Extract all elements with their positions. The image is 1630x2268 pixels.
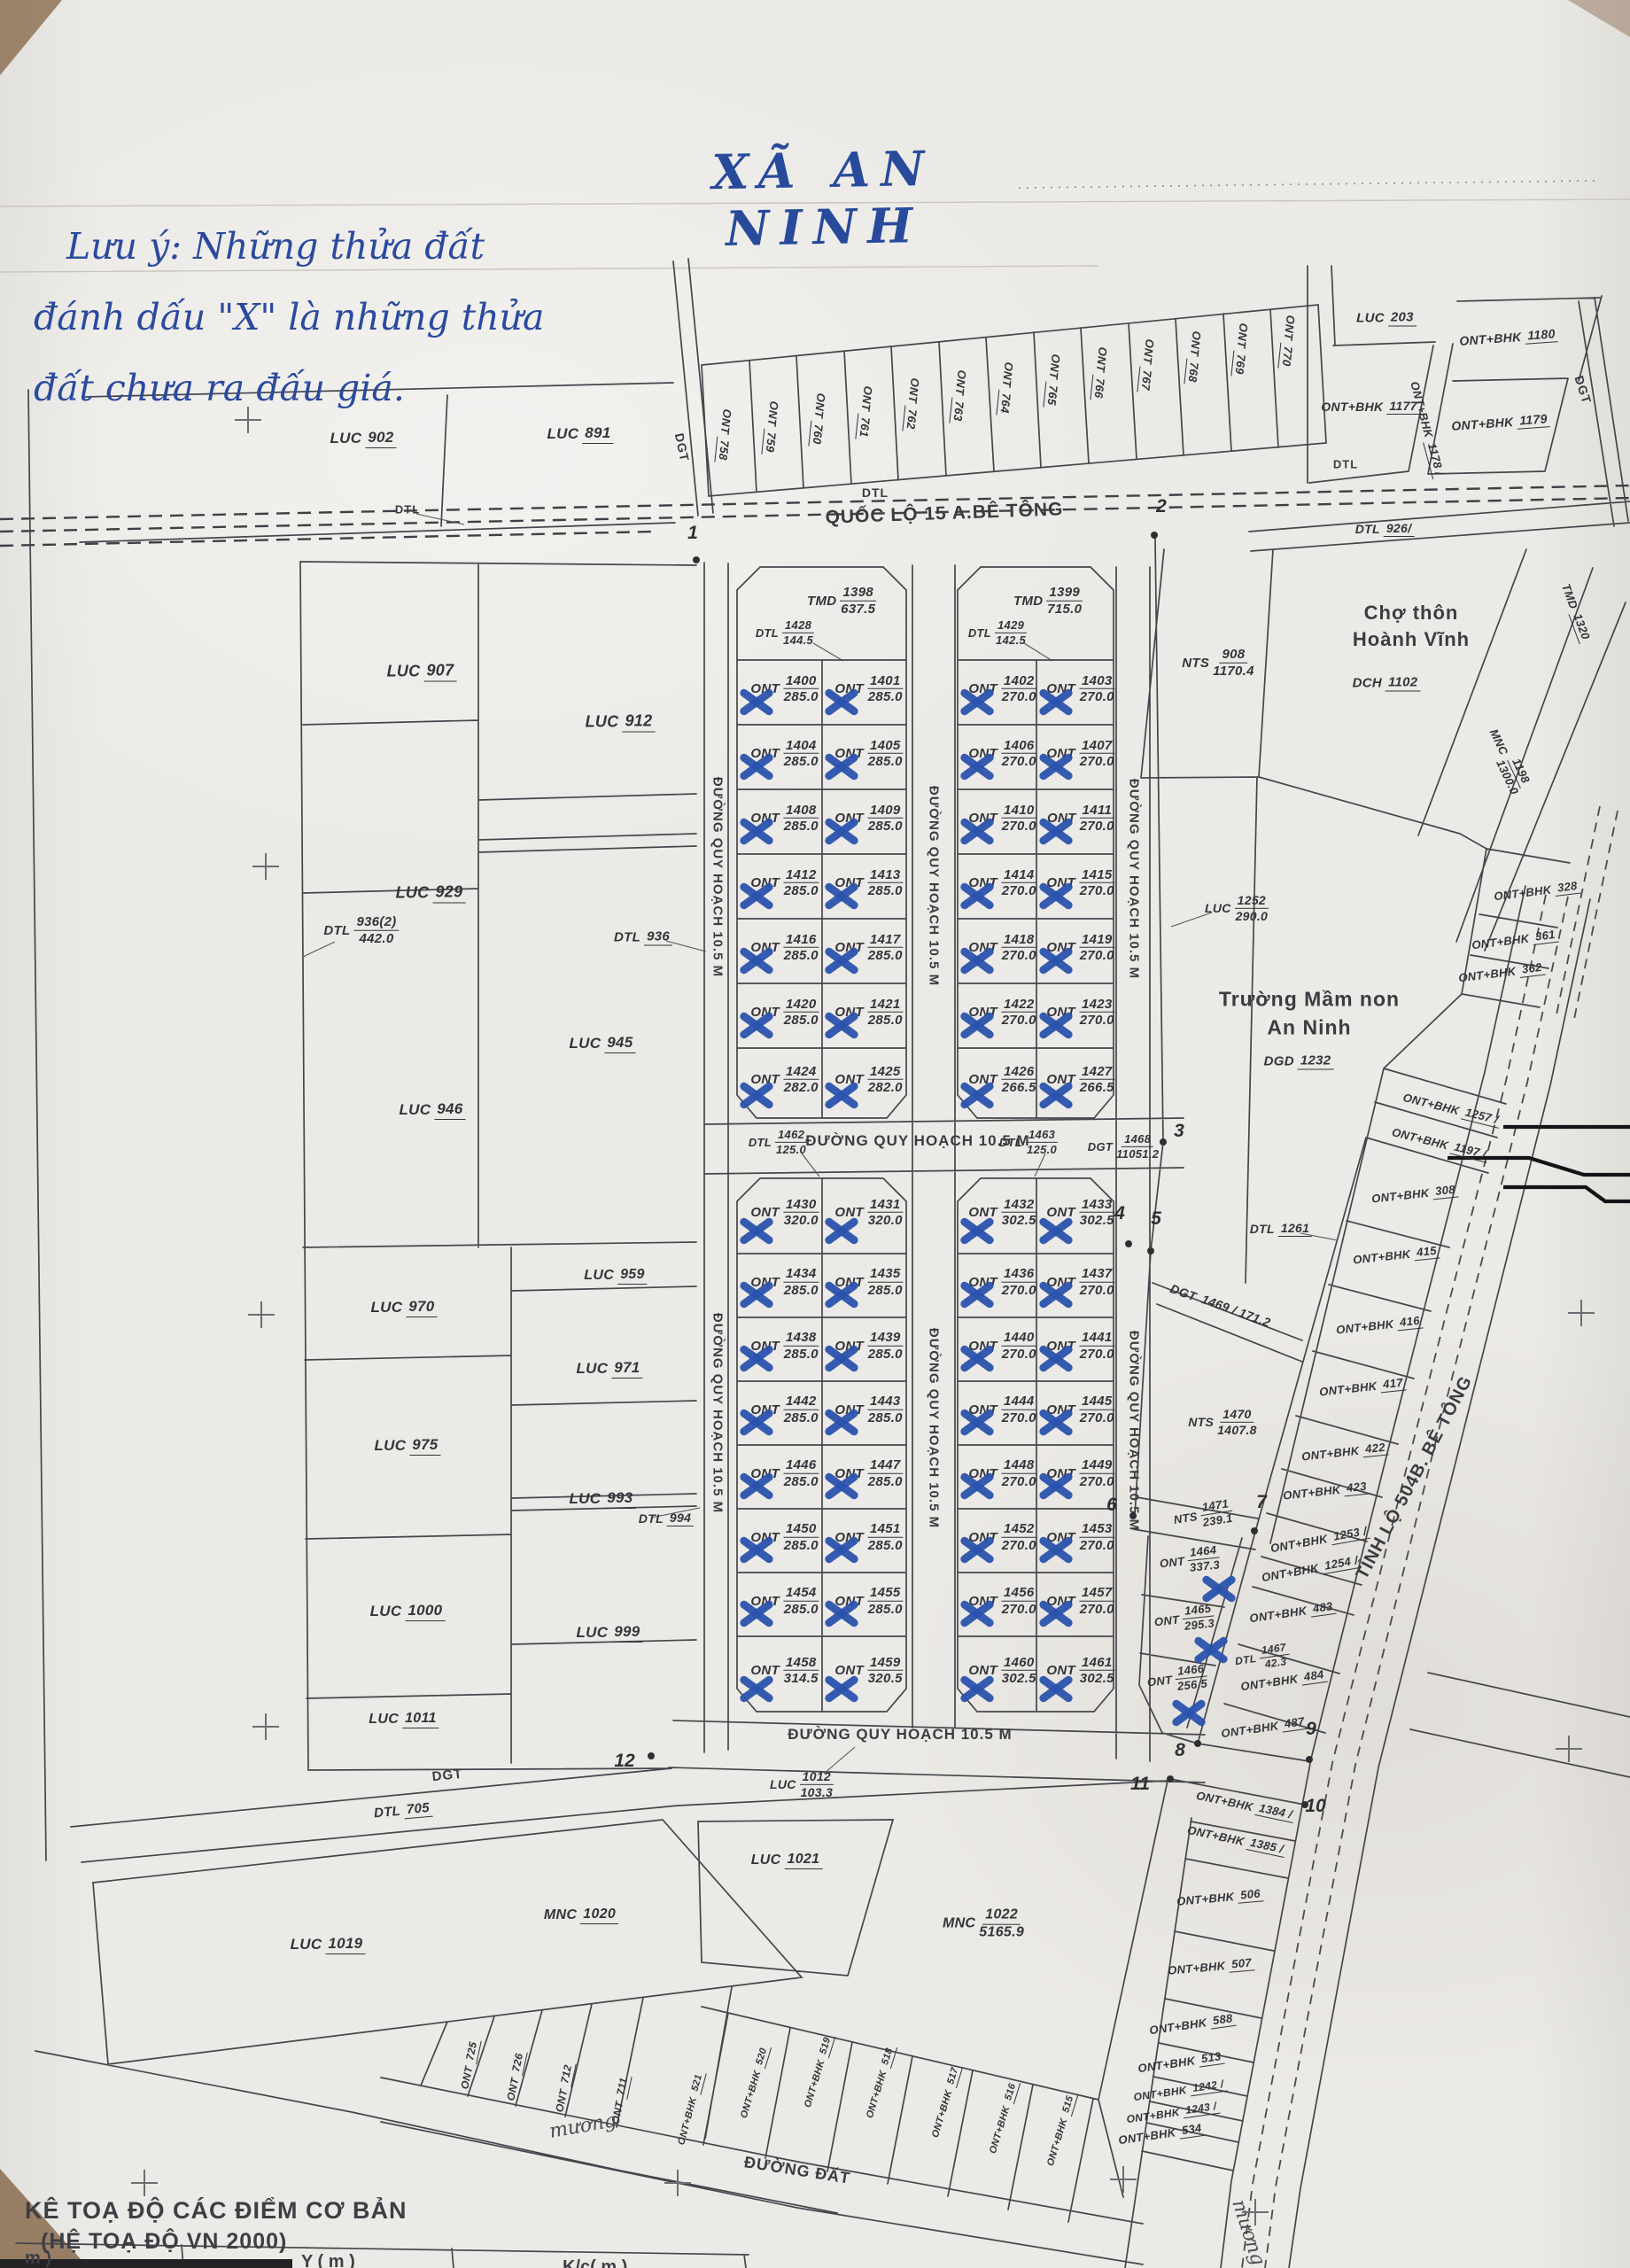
road-label: ĐƯỜNG QUY HOẠCH 10.5 M <box>1127 779 1142 979</box>
land-use-code: DTL <box>1234 1652 1257 1667</box>
parcel-number: 1429 <box>995 619 1027 633</box>
parcel-fraction: 1012103.3 <box>800 1770 834 1798</box>
survey-point-number: 3 <box>1174 1121 1184 1142</box>
parcel-number: 1407 <box>1079 738 1115 754</box>
parcel-number: 1431 <box>867 1197 904 1213</box>
parcel-number: 1102 <box>1385 675 1420 692</box>
parcel-number: 1411 <box>1080 803 1114 819</box>
parcel-fraction: 1412285.0 <box>783 867 819 898</box>
parcel-fraction: 1447285.0 <box>867 1458 904 1489</box>
parcel-fraction: 1415270.0 <box>1079 867 1115 898</box>
parcel-number: 758 <box>714 437 732 463</box>
parcel-fraction: 1438285.0 <box>783 1331 819 1362</box>
land-use-code: ONT+BHK <box>1321 400 1383 414</box>
parcel-fraction: 1464337.3 <box>1187 1543 1222 1573</box>
parcel-number: 203 <box>1388 310 1417 327</box>
land-use-code: ONT <box>1235 322 1251 349</box>
land-use-code: LUC <box>751 1852 781 1868</box>
parcel-fraction: 1453270.0 <box>1079 1522 1115 1553</box>
land-use-code: NTS <box>1182 656 1209 671</box>
parcel-area: 285.0 <box>784 1347 819 1362</box>
parcel-fraction: 1427266.5 <box>1079 1064 1115 1095</box>
parcel-number: 308 <box>1432 1182 1458 1200</box>
auction-x-mark <box>957 1213 997 1248</box>
parcel-area: 270.0 <box>1080 1283 1114 1298</box>
parcel-fraction: 1424282.0 <box>783 1064 819 1095</box>
parcel-number: 1457 <box>1079 1586 1115 1602</box>
parcel-number: 1412 <box>783 867 819 883</box>
parcel-number: 1019 <box>325 1935 365 1954</box>
parcel-label: LUC203 <box>1356 310 1417 327</box>
parcel-label: DTL1429142.5 <box>968 619 1027 646</box>
parcel-fraction: 1434285.0 <box>783 1267 819 1298</box>
parcel-area: 125.0 <box>1027 1143 1057 1156</box>
parcel-number: 1425 <box>867 1064 904 1080</box>
parcel-number: 770 <box>1277 343 1295 369</box>
auction-x-mark <box>1036 1007 1076 1043</box>
land-use-code: DTL <box>749 1136 772 1149</box>
parcel-number: 1422 <box>1001 997 1037 1013</box>
auction-x-mark <box>821 684 862 719</box>
parcel-fraction: 1426266.5 <box>1001 1064 1037 1095</box>
land-use-code: LUC <box>547 425 578 443</box>
parcel-area: 270.0 <box>1002 754 1036 769</box>
auction-x-mark <box>821 1404 862 1440</box>
parcel-number: 769 <box>1230 351 1248 377</box>
land-use-code: LUC <box>1205 901 1231 915</box>
auction-x-mark <box>736 1277 777 1312</box>
parcel-area: 270.0 <box>1080 1410 1114 1425</box>
parcel-area: 320.0 <box>784 1213 819 1228</box>
road-label: DTL <box>862 485 889 500</box>
parcel-fraction: 1421285.0 <box>867 997 904 1028</box>
parcel-fraction: 1420285.0 <box>783 997 819 1028</box>
parcel-number: 506 <box>1238 1886 1264 1903</box>
auction-x-mark <box>1036 943 1076 978</box>
parcel-number: 761 <box>855 414 873 440</box>
parcel-fraction: 1454285.0 <box>783 1586 819 1617</box>
parcel-number: 1468 <box>1122 1133 1153 1147</box>
auction-x-mark <box>1036 749 1076 784</box>
parcel-fraction: 1437270.0 <box>1079 1267 1115 1298</box>
parcel-area: 285.0 <box>784 1538 819 1553</box>
table-col-header: Y ( m ) <box>301 2252 355 2268</box>
parcel-number: 936(2) <box>353 915 399 931</box>
land-use-code: MNC <box>544 1907 577 1923</box>
parcel-number: 766 <box>1090 375 1107 401</box>
parcel-area: 285.0 <box>784 819 819 834</box>
parcel-number: 946 <box>434 1100 465 1120</box>
land-use-code: ONT <box>1153 1612 1180 1628</box>
parcel-label: DTL1462125.0 <box>749 1129 807 1155</box>
parcel-area: 270.0 <box>1002 948 1036 963</box>
parcel-number: 1463 <box>1026 1129 1058 1143</box>
parcel-fraction: 1422270.0 <box>1001 997 1037 1028</box>
parcel-fraction: 1461302.5 <box>1079 1655 1115 1686</box>
road-label: ĐƯỜNG QUY HOẠCH 10.5 M <box>788 1726 1012 1744</box>
footer-heading: KÊ TOẠ ĐỘ CÁC ĐIỂM CƠ BẢN <box>25 2197 407 2225</box>
survey-point-dot <box>1151 532 1158 539</box>
parcel-number: 1403 <box>1079 673 1115 689</box>
note-line: đánh dấu "X" là những thửa <box>34 299 545 336</box>
survey-point-dot <box>693 556 700 563</box>
photo-corner <box>0 0 62 75</box>
parcel-area: 302.5 <box>1080 1671 1114 1686</box>
parcel-number: 765 <box>1043 382 1060 408</box>
land-use-code: LUC <box>370 1299 402 1317</box>
parcel-number: 1414 <box>1001 867 1037 883</box>
parcel-number: 763 <box>949 398 966 424</box>
auction-x-mark <box>736 749 777 784</box>
parcel-area: 1407.8 <box>1217 1423 1257 1437</box>
parcel-area: 302.5 <box>1002 1213 1036 1228</box>
parcel-area: 270.0 <box>1002 1602 1036 1617</box>
parcel-number: 1419 <box>1079 932 1115 948</box>
parcel-fraction: 1404285.0 <box>783 738 819 769</box>
survey-point-number: 8 <box>1175 1740 1185 1761</box>
auction-x-mark <box>957 1404 997 1440</box>
auction-x-mark <box>821 1007 862 1043</box>
parcel-area: 270.0 <box>1080 883 1114 898</box>
land-use-code: LUC <box>330 430 361 447</box>
land-use-code: LUC <box>374 1437 406 1455</box>
land-use-code: NTS <box>1188 1415 1214 1429</box>
parcel-fraction: 1423270.0 <box>1079 997 1115 1028</box>
land-use-code: ONT <box>1141 338 1157 365</box>
land-use-code: LUC <box>576 1360 608 1378</box>
parcel-fraction: 1460302.5 <box>1001 1655 1037 1686</box>
parcel-number: 1446 <box>783 1458 819 1474</box>
parcel-fraction: 1465295.3 <box>1182 1602 1216 1632</box>
parcel-number: 1433 <box>1079 1197 1115 1213</box>
parcel-fraction: 1411270.0 <box>1080 803 1114 834</box>
parcel-area: 256.5 <box>1176 1676 1207 1692</box>
auction-x-mark <box>957 1671 997 1706</box>
parcel-number: 945 <box>604 1034 635 1053</box>
land-use-code: ONT <box>765 400 781 427</box>
note-line: Lưu ý: Những thửa đất <box>66 229 485 265</box>
parcel-number: 1021 <box>785 1852 823 1869</box>
parcel-label: LUC929 <box>396 883 466 904</box>
parcel-number: 993 <box>604 1489 635 1509</box>
parcel-fraction: 1409285.0 <box>867 803 904 834</box>
auction-x-mark <box>736 1532 777 1567</box>
parcel-fraction: 1430320.0 <box>783 1197 819 1228</box>
auction-x-mark <box>1036 1340 1076 1376</box>
parcel-fraction: 1417285.0 <box>867 932 904 963</box>
parcel-label: MNC10225165.9 <box>943 1908 1024 1941</box>
parcel-label: DTL994 <box>639 1511 694 1526</box>
parcel-area: 270.0 <box>1002 1283 1036 1298</box>
auction-x-mark <box>957 1077 997 1113</box>
auction-x-mark <box>957 1340 997 1376</box>
parcel-number: 908 <box>1219 648 1247 664</box>
auction-x-mark <box>1036 878 1076 913</box>
parcel-area: 5165.9 <box>979 1925 1024 1941</box>
land-use-code: LUC <box>369 1712 399 1728</box>
parcel-area: 282.0 <box>784 1080 819 1095</box>
map-title: XÃ AN NINH <box>628 138 1020 259</box>
auction-x-mark <box>736 1340 777 1376</box>
parcel-label: NTS14701407.8 <box>1188 1408 1257 1436</box>
auction-x-mark <box>1036 813 1076 849</box>
parcel-area: 285.0 <box>868 689 903 704</box>
parcel-number: 1438 <box>783 1331 819 1347</box>
parcel-number: 1437 <box>1079 1267 1115 1283</box>
parcel-label: TMD1399715.0 <box>1013 586 1083 617</box>
parcel-fraction: 1449270.0 <box>1079 1458 1115 1489</box>
parcel-number: 1459 <box>867 1655 904 1671</box>
parcel-area: 142.5 <box>996 633 1026 647</box>
auction-x-mark <box>821 813 862 849</box>
parcel-number: 912 <box>622 712 655 733</box>
parcel-area: 637.5 <box>841 602 875 617</box>
auction-x-mark <box>736 943 777 978</box>
parcel-number: 1449 <box>1079 1458 1115 1474</box>
parcel-number: 929 <box>432 883 465 904</box>
auction-x-mark <box>1036 1532 1076 1567</box>
parcel-fraction: 1413285.0 <box>867 867 904 898</box>
parcel-fraction: 1398637.5 <box>840 586 876 617</box>
parcel-number: 936 <box>644 929 672 946</box>
parcel-number: 768 <box>1184 359 1201 385</box>
parcel-area: 285.0 <box>868 883 903 898</box>
parcel-fraction: 146742.3 <box>1258 1642 1291 1671</box>
auction-x-mark <box>1036 1213 1076 1248</box>
survey-point-dot <box>1167 1775 1174 1783</box>
parcel-label: LUC970 <box>370 1298 437 1317</box>
parcel-number: 999 <box>611 1623 642 1643</box>
auction-x-mark <box>736 1671 777 1706</box>
parcel-number: 1461 <box>1079 1655 1115 1671</box>
parcel-number: 891 <box>582 424 613 444</box>
land-use-code: LUC <box>291 1936 322 1953</box>
parcel-area: 1170.4 <box>1213 664 1254 679</box>
survey-point-dot <box>1160 1138 1167 1146</box>
survey-point-dot <box>1129 1512 1137 1519</box>
land-use-code: LUC <box>387 663 421 681</box>
parcel-number: 1409 <box>867 803 904 819</box>
parcel-number: 1400 <box>783 673 819 689</box>
parcel-area: 285.0 <box>784 754 819 769</box>
land-use-code: ONT <box>1282 315 1298 341</box>
auction-x-mark <box>957 943 997 978</box>
parcel-number: 1436 <box>1001 1267 1037 1283</box>
parcel-number: 1410 <box>1001 803 1037 819</box>
survey-point-number: 6 <box>1106 1495 1117 1516</box>
parcel-fraction: 1402270.0 <box>1001 673 1037 704</box>
parcel-number: 975 <box>409 1436 440 1456</box>
parcel-fraction: 1444270.0 <box>1001 1394 1037 1425</box>
road-label: ĐƯỜNG QUY HOẠCH 10.5 M <box>927 786 942 986</box>
parcel-label: LUC1252290.0 <box>1205 894 1269 922</box>
parcel-area: 103.3 <box>801 1785 834 1799</box>
parcel-number: 1442 <box>783 1394 819 1410</box>
parcel-number: 507 <box>1229 1955 1255 1972</box>
parcel-number: 1434 <box>783 1267 819 1283</box>
parcel-area: 442.0 <box>360 931 394 946</box>
auction-x-mark <box>1199 1571 1239 1606</box>
parcel-area: 270.0 <box>1080 1474 1114 1489</box>
parcel-area: 270.0 <box>1002 819 1036 834</box>
auction-x-mark <box>821 1213 862 1248</box>
parcel-label: ONT+BHK1177 <box>1321 399 1419 415</box>
land-use-code: ONT <box>812 392 828 419</box>
road-label: Hoành Vĩnh <box>1353 628 1470 651</box>
parcel-label: LUC959 <box>584 1267 647 1285</box>
parcel-area: 270.0 <box>1080 1538 1114 1553</box>
parcel-number: 1455 <box>867 1586 904 1602</box>
auction-x-mark <box>957 749 997 784</box>
parcel-fraction: 1433302.5 <box>1079 1197 1115 1228</box>
auction-x-mark <box>736 813 777 849</box>
parcel-area: 285.0 <box>784 1013 819 1028</box>
auction-x-mark <box>957 1532 997 1567</box>
parcel-area: 270.0 <box>1080 689 1114 704</box>
auction-x-mark <box>821 1468 862 1503</box>
road-label: DGT <box>431 1767 463 1785</box>
auction-x-mark <box>736 1596 777 1631</box>
road-label: An Ninh <box>1267 1016 1351 1040</box>
parcel-label: MNC1020 <box>544 1907 618 1924</box>
parcel-fraction: 14701407.8 <box>1217 1408 1257 1436</box>
parcel-fraction: 1443285.0 <box>867 1394 904 1425</box>
parcel-area: 266.5 <box>1080 1080 1114 1095</box>
parcel-number: 1441 <box>1079 1331 1115 1347</box>
parcel-fraction: 1440270.0 <box>1001 1331 1037 1362</box>
parcel-fraction: 1425282.0 <box>867 1064 904 1095</box>
road-label: ĐƯỜNG QUY HOẠCH 10.5 M <box>1127 1331 1142 1531</box>
parcel-number: 1011 <box>402 1711 439 1728</box>
parcel-fraction: 1429142.5 <box>995 619 1027 646</box>
parcel-area: 320.5 <box>868 1671 903 1686</box>
auction-x-mark <box>957 684 997 719</box>
land-use-code: LUC <box>569 1490 601 1508</box>
parcel-number: 1232 <box>1298 1053 1334 1070</box>
parcel-number: 1450 <box>783 1522 819 1538</box>
parcel-number: 759 <box>761 429 779 455</box>
parcel-number: 1453 <box>1079 1522 1115 1538</box>
land-use-code: ONT <box>718 408 734 435</box>
parcel-number: 902 <box>365 429 396 448</box>
parcel-number: 416 <box>1396 1313 1423 1331</box>
parcel-label: DTL936 <box>614 929 672 946</box>
land-use-code: DTL <box>614 930 640 945</box>
parcel-fraction: 1466256.5 <box>1175 1662 1209 1692</box>
grid-cross-mark <box>1242 2199 1269 2225</box>
parcel-number: 1000 <box>405 1602 445 1621</box>
parcel-area: 285.0 <box>868 1410 903 1425</box>
parcel-number: 415 <box>1413 1243 1440 1261</box>
parcel-label: LUC907 <box>387 662 457 682</box>
parcel-number: 971 <box>611 1359 642 1379</box>
road-label: ĐƯỜNG QUY HOẠCH 10.5 M <box>805 1132 1029 1150</box>
parcel-label: DTL926/ <box>1355 521 1415 537</box>
survey-point-dot <box>1251 1527 1258 1534</box>
parcel-area: 285.0 <box>784 1283 819 1298</box>
parcel-fraction: 936(2)442.0 <box>353 915 399 946</box>
land-use-code: MNC <box>943 1916 975 1932</box>
parcel-number: 762 <box>902 406 920 432</box>
auction-x-mark <box>1036 684 1076 719</box>
parcel-fraction: 1457270.0 <box>1079 1586 1115 1617</box>
parcel-fraction: 1462125.0 <box>775 1129 807 1155</box>
parcel-area: 144.5 <box>783 633 813 647</box>
land-use-code: DCH <box>1353 676 1382 691</box>
parcel-number: 1179 <box>1517 411 1550 430</box>
parcel-fraction: 1405285.0 <box>867 738 904 769</box>
parcel-area: 270.0 <box>1080 819 1114 834</box>
auction-x-mark <box>821 749 862 784</box>
auction-x-mark <box>736 1468 777 1503</box>
parcel-area: 11051.2 <box>1116 1147 1159 1161</box>
auction-x-mark <box>821 1077 862 1113</box>
survey-point-number: 11 <box>1130 1774 1150 1795</box>
parcel-fraction: 1435285.0 <box>867 1267 904 1298</box>
parcel-fraction: 1442285.0 <box>783 1394 819 1425</box>
parcel-area: 285.0 <box>784 1474 819 1489</box>
note-line: đất chưa ra đấu giá. <box>34 370 405 407</box>
parcel-number: 1415 <box>1079 867 1115 883</box>
parcel-area: 270.0 <box>1002 1410 1036 1425</box>
grid-cross-mark <box>252 1713 279 1740</box>
parcel-label: TMD1398637.5 <box>807 586 876 617</box>
parcel-area: 270.0 <box>1080 1013 1114 1028</box>
parcel-area: 285.0 <box>784 883 819 898</box>
parcel-area: 302.5 <box>1080 1213 1114 1228</box>
parcel-boundaries <box>702 305 1326 496</box>
auction-x-mark <box>1036 1671 1076 1706</box>
land-use-code: ONT <box>1146 1673 1173 1689</box>
parcel-area: 42.3 <box>1264 1655 1287 1670</box>
parcel-fraction: 1441270.0 <box>1079 1331 1115 1362</box>
parcel-fraction: 1458314.5 <box>783 1655 819 1686</box>
parcel-label: LUC999 <box>576 1623 642 1643</box>
parcel-label: LUC912 <box>586 712 656 733</box>
parcel-number: 1180 <box>1525 326 1558 345</box>
parcel-label: LUC891 <box>547 424 613 444</box>
parcel-label: DTL1261 <box>1250 1221 1312 1237</box>
auction-x-mark <box>736 1007 777 1043</box>
grid-cross-mark <box>248 1301 275 1328</box>
land-use-code: ONT <box>1094 346 1110 373</box>
parcel-number: 1252 <box>1235 894 1269 909</box>
parcel-number: 1022 <box>982 1908 1021 1925</box>
parcel-area: 715.0 <box>1047 602 1082 617</box>
parcel-number: 760 <box>808 421 826 447</box>
parcel-fraction: 10225165.9 <box>979 1908 1024 1941</box>
parcel-number: 705 <box>403 1800 432 1820</box>
road-label: ĐƯỜNG QUY HOẠCH 10.5 M <box>710 777 726 977</box>
parcel-boundaries <box>737 1178 906 1712</box>
parcel-number: 1445 <box>1079 1394 1115 1410</box>
survey-point-dot <box>1147 1247 1154 1254</box>
grid-cross-mark <box>235 407 261 433</box>
land-use-code: ONT <box>1047 353 1063 380</box>
parcel-fraction: 1416285.0 <box>783 932 819 963</box>
parcel-number: 959 <box>617 1267 648 1285</box>
parcel-area: 282.0 <box>868 1080 903 1095</box>
land-use-code: TMD <box>1013 594 1043 609</box>
auction-x-mark <box>1036 1277 1076 1312</box>
parcel-fraction: 1455285.0 <box>867 1586 904 1617</box>
survey-point-number: 4 <box>1114 1203 1125 1224</box>
auction-x-mark <box>821 1671 862 1706</box>
parcel-area: 270.0 <box>1002 1538 1036 1553</box>
survey-point-dot <box>1125 1240 1132 1247</box>
parcel-number: 1432 <box>1001 1197 1037 1213</box>
auction-x-mark <box>821 943 862 978</box>
